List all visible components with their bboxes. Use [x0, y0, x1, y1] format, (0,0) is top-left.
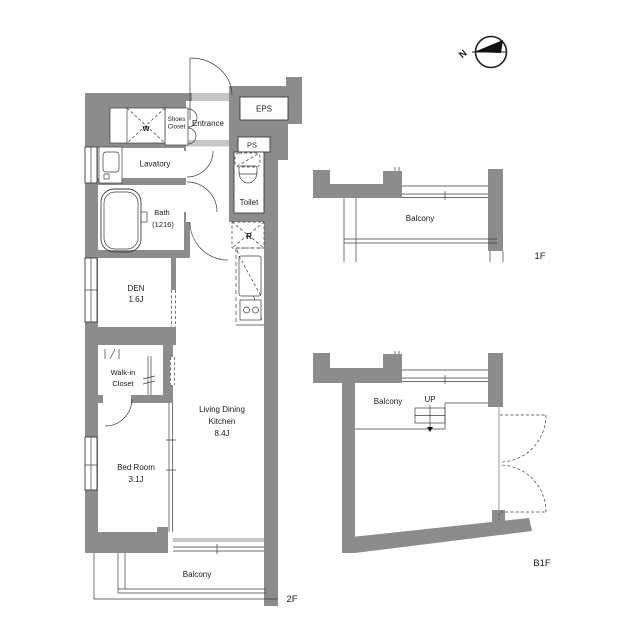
ldk-window [173, 538, 264, 554]
room-label-den-1: DEN [128, 284, 145, 293]
room-label-entrance: Entrance [192, 119, 225, 128]
room-label-ldk-2: Kitchen [209, 417, 236, 426]
room-label-bedroom-1: Bed Room [117, 463, 155, 472]
plan-2f: W Shoes Closet Entrance EPS PS Lavatory … [85, 58, 302, 606]
room-label-refrigerator: R [246, 232, 252, 241]
vanity-sink [99, 147, 122, 183]
room-label-balcony-2f: Balcony [183, 570, 211, 579]
lines-b1f [355, 351, 488, 429]
compass-north-label: N [457, 48, 469, 61]
compass-icon: N [457, 37, 506, 68]
room-label-wic-2: Closet [112, 379, 134, 388]
room-label-wic-1: Walk-in [111, 368, 136, 377]
room-label-ps: PS [247, 141, 257, 150]
washer-closet [110, 108, 165, 143]
room-label-washer: W [142, 124, 150, 133]
room-label-lavatory: Lavatory [140, 160, 171, 169]
stairs-up [415, 405, 445, 432]
floor-label-1f: 1F [534, 251, 545, 262]
room-label-ldk-3: 8.4J [214, 429, 229, 438]
room-label-bath-1: Bath [154, 208, 169, 217]
room-label-eps: EPS [256, 105, 272, 114]
room-label-toilet: Toilet [240, 198, 259, 207]
basement-double-door [499, 407, 546, 520]
room-label-bedroom-2: 3.1J [128, 475, 143, 484]
room-label-balcony-1f: Balcony [406, 214, 434, 223]
stairs-up-label: UP [424, 395, 435, 404]
room-label-bath-2: (1216) [152, 220, 174, 229]
room-label-balcony-b1f: Balcony [374, 397, 402, 406]
floor-label-b1f: B1F [533, 558, 551, 569]
room-label-shoes-closet-1: Shoes [168, 116, 186, 123]
room-label-ldk-1: Living Dining [199, 405, 245, 414]
plan-1f: Balcony 1F [313, 167, 546, 262]
floor-label-2f: 2F [286, 594, 297, 605]
kitchen-counter [236, 248, 264, 325]
room-label-shoes-closet-2: Closet [168, 124, 186, 131]
floorplan-canvas: W Shoes Closet Entrance EPS PS Lavatory … [0, 0, 640, 640]
plan-b1f: Balcony UP B1F [313, 351, 551, 569]
room-label-den-2: 1.6J [128, 295, 143, 304]
